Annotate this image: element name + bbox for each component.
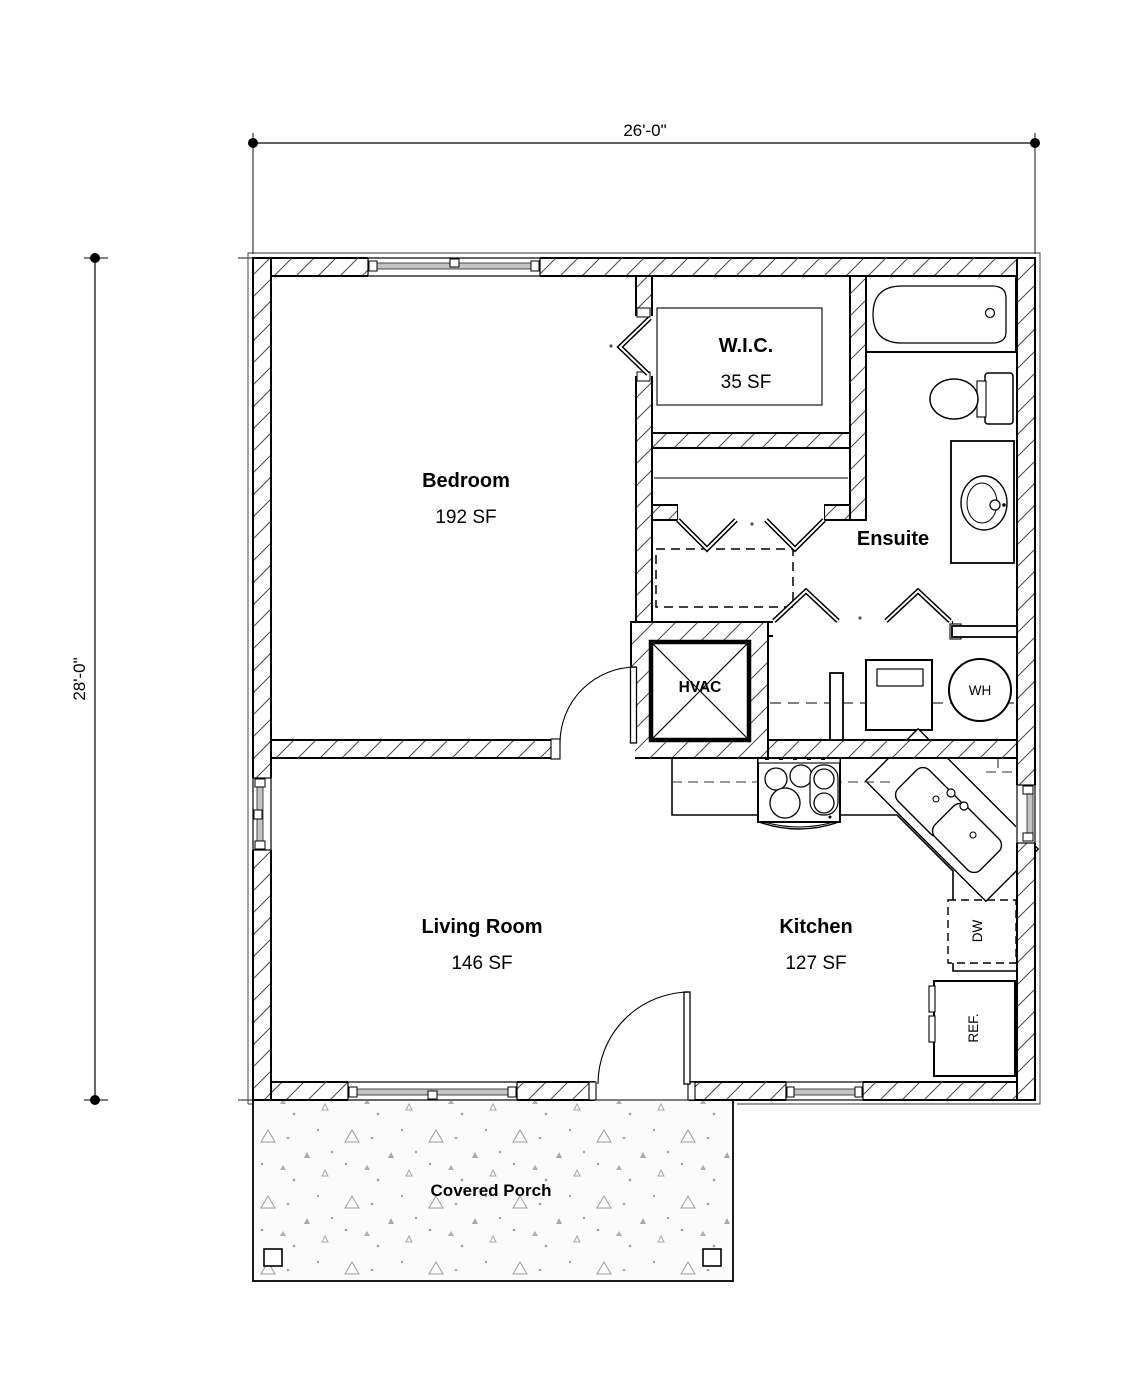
wall-exterior-right	[1017, 258, 1035, 1100]
bedroom-label: Bedroom	[422, 470, 510, 492]
door-jamb	[551, 739, 560, 759]
burner	[770, 788, 800, 818]
hvac-label: HVAC	[679, 679, 722, 696]
hvac-closet: HVAC	[651, 642, 749, 740]
living-room-area: 146 SF	[451, 953, 512, 974]
door-swing-dot	[609, 344, 612, 347]
kitchen-label: Kitchen	[779, 916, 852, 938]
wall-closet-stub-right	[824, 505, 850, 520]
covered-porch: Covered Porch	[253, 1100, 733, 1281]
toilet-bowl	[930, 379, 978, 419]
door-jamb	[688, 1082, 695, 1100]
wall-wic-ensuite	[850, 276, 866, 520]
sink-drain	[970, 832, 976, 838]
sink-drain	[933, 796, 939, 802]
refrigerator-handle	[929, 1016, 935, 1042]
window-frame-cap	[855, 1087, 862, 1097]
window-frame-cap	[255, 841, 265, 849]
burner	[765, 768, 787, 790]
window-frame-cap	[369, 261, 377, 271]
window-kitchen-right	[1016, 785, 1036, 843]
bedroom-door-leaf	[631, 667, 637, 743]
sink-faucet	[947, 789, 955, 797]
dimension-width-label: 26'-0"	[623, 121, 666, 140]
dimension-top: 26'-0"	[249, 121, 1040, 254]
ensuite-label: Ensuite	[857, 528, 929, 550]
window-frame-cap	[787, 1087, 794, 1097]
wic-label: W.I.C.	[719, 335, 773, 357]
window-frame-cap	[1023, 786, 1033, 794]
vanity-handle-dot	[1002, 503, 1006, 507]
stove	[758, 756, 840, 829]
dim-endpoint-dot	[91, 254, 100, 263]
bathtub-drain	[986, 309, 995, 318]
window-bedroom-top	[368, 257, 540, 277]
door-swing-dot	[858, 616, 861, 619]
window-frame-cap	[255, 779, 265, 787]
window-living-bottom	[348, 1081, 517, 1101]
covered-porch-label: Covered Porch	[431, 1181, 552, 1200]
window-living-left	[252, 778, 272, 850]
wic-area: 35 SF	[721, 372, 772, 393]
washer-control-panel	[877, 669, 923, 686]
bedroom-area: 192 SF	[435, 507, 496, 528]
window-glass	[1027, 789, 1033, 839]
porch-post	[264, 1249, 282, 1266]
water-heater-label: WH	[969, 683, 992, 698]
door-jamb	[589, 1082, 596, 1100]
kitchen-area: 127 SF	[785, 953, 846, 974]
burner	[814, 769, 834, 789]
window-kitchen-bottom	[786, 1081, 863, 1101]
toilet-tank	[985, 373, 1013, 424]
refrigerator-handle	[929, 986, 935, 1012]
wall-ensuite-front	[952, 626, 1017, 637]
sink-faucet	[960, 802, 968, 810]
window-frame-cap	[1023, 833, 1033, 841]
window-glass	[790, 1089, 859, 1095]
entry-door-leaf	[684, 992, 690, 1084]
dimension-left: 28'-0"	[70, 254, 253, 1105]
burner	[814, 793, 834, 813]
living-room-label: Living Room	[421, 916, 542, 938]
vanity-faucet	[990, 500, 1000, 510]
window-mullion	[254, 810, 262, 819]
floor-plan-page: 26'-0" 28'-0" Covered Porch	[0, 0, 1142, 1393]
window-mullion	[428, 1091, 437, 1099]
floor-plan-drawing: 26'-0" 28'-0" Covered Porch	[0, 0, 1142, 1393]
dim-endpoint-dot	[249, 139, 258, 148]
dimension-height-label: 28'-0"	[70, 657, 89, 700]
window-frame-cap	[349, 1087, 357, 1097]
dim-endpoint-dot	[91, 1096, 100, 1105]
dishwasher-label: DW	[970, 920, 985, 943]
wall-exterior-left	[253, 258, 271, 1100]
wall-wic-bottom	[652, 433, 850, 448]
door-swing-dot	[750, 522, 753, 525]
door-jamb	[637, 308, 650, 317]
burner	[790, 765, 812, 787]
porch-post	[703, 1249, 721, 1266]
refrigerator-label: REF.	[966, 1013, 981, 1042]
window-frame-cap	[531, 261, 539, 271]
wall-laundry-stub	[830, 673, 843, 740]
window-frame-cap	[508, 1087, 516, 1097]
dim-endpoint-dot	[1031, 139, 1040, 148]
window-mullion	[450, 259, 459, 267]
wall-closet-stub-left	[652, 505, 678, 520]
